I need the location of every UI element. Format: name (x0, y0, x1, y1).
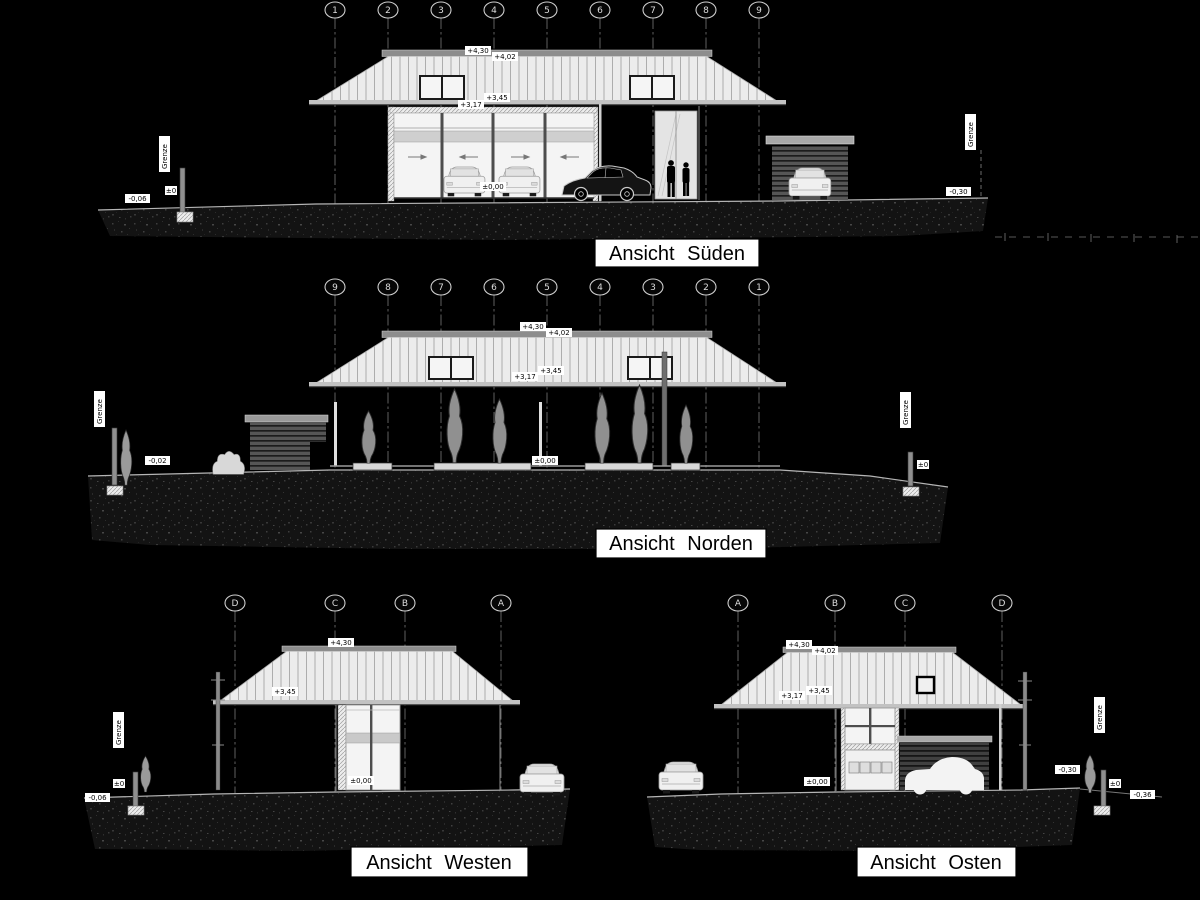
svg-text:C: C (332, 599, 338, 609)
svg-text:-0,06: -0,06 (128, 195, 147, 203)
view-sued: 1 2 3 4 5 6 7 8 9 (98, 2, 1200, 267)
view-ost: A B C D (647, 595, 1162, 877)
svg-text:+4,30: +4,30 (467, 47, 488, 55)
grid-bubble: 9 8 7 6 5 4 3 2 1 (325, 279, 769, 295)
svg-text:+4,30: +4,30 (330, 639, 351, 647)
svg-text:±0,00: ±0,00 (806, 778, 827, 786)
roof-window (917, 677, 934, 693)
svg-text:±0: ±0 (1110, 780, 1120, 788)
svg-text:C: C (902, 599, 908, 609)
elevation-sheet: 1 2 3 4 5 6 7 8 9 (0, 0, 1200, 900)
svg-text:+3,17: +3,17 (781, 692, 802, 700)
downpipe-east (1018, 672, 1032, 790)
svg-text:+4,02: +4,02 (814, 647, 835, 655)
svg-text:7: 7 (650, 6, 656, 16)
svg-text:±0,00: ±0,00 (534, 457, 555, 465)
svg-text:Ansicht Norden: Ansicht Norden (609, 533, 753, 555)
porch-column (334, 402, 337, 466)
svg-text:±0: ±0 (166, 187, 176, 195)
building-north (213, 331, 786, 474)
svg-text:±0: ±0 (114, 780, 124, 788)
grid-bubble: 1 2 3 4 5 6 7 8 9 (325, 2, 769, 18)
window-east (841, 708, 899, 790)
entrance-door (655, 111, 697, 199)
view-west: D C B A Grenze ±0 (84, 595, 570, 877)
svg-text:B: B (832, 599, 838, 609)
building-west (211, 646, 564, 796)
svg-text:-0,30: -0,30 (949, 188, 967, 196)
svg-text:A: A (498, 599, 505, 609)
svg-text:8: 8 (703, 6, 709, 16)
porch-column (999, 704, 1002, 790)
svg-text:9: 9 (332, 283, 338, 293)
roof-west (220, 651, 513, 701)
svg-text:8: 8 (385, 283, 391, 293)
title-east: Ansicht Osten (857, 847, 1016, 877)
building-south (309, 50, 854, 201)
svg-text:5: 5 (544, 283, 550, 293)
title-north: Ansicht Norden (596, 529, 766, 558)
ground-south (98, 198, 1200, 243)
grid-bubble: A B C D (728, 595, 1012, 611)
svg-text:±0,00: ±0,00 (350, 777, 371, 785)
car-front-in-showroom (499, 167, 540, 196)
downpipe-north (662, 352, 667, 466)
svg-text:9: 9 (756, 6, 762, 16)
svg-text:-0,30: -0,30 (1058, 766, 1076, 774)
cypress (141, 756, 151, 792)
downpipe-west (211, 672, 225, 790)
svg-text:+4,02: +4,02 (548, 329, 569, 337)
building-east (659, 647, 1032, 795)
svg-text:1: 1 (756, 283, 762, 293)
roof-north (316, 337, 777, 383)
cypress-trees (362, 385, 693, 463)
car-front-east (659, 762, 703, 794)
svg-text:Grenze: Grenze (967, 122, 975, 147)
garden-shed (245, 415, 328, 470)
svg-text:D: D (999, 599, 1006, 609)
svg-text:+3,17: +3,17 (460, 101, 481, 109)
car-front-carport (789, 168, 831, 200)
grid-bubble: D C B A (225, 595, 511, 611)
view-nord: 9 8 7 6 5 4 3 2 1 (88, 279, 948, 558)
car-front-in-showroom (444, 167, 485, 196)
carport-south (766, 136, 854, 200)
svg-text:-0,02: -0,02 (148, 457, 166, 465)
ground-north (88, 470, 948, 549)
svg-text:4: 4 (597, 283, 603, 293)
svg-text:B: B (402, 599, 408, 609)
ground-west (84, 789, 570, 851)
svg-text:+3,45: +3,45 (808, 687, 829, 695)
svg-text:5: 5 (544, 6, 550, 16)
svg-text:+3,45: +3,45 (486, 94, 507, 102)
svg-text:±0,00: ±0,00 (482, 183, 503, 191)
svg-text:+3,45: +3,45 (540, 367, 561, 375)
svg-text:3: 3 (438, 6, 444, 16)
svg-text:6: 6 (491, 283, 497, 293)
svg-text:-0,36: -0,36 (1133, 791, 1152, 799)
svg-text:±0: ±0 (918, 461, 928, 469)
svg-text:+4,30: +4,30 (788, 641, 809, 649)
svg-text:2: 2 (703, 283, 709, 293)
svg-text:Ansicht Osten: Ansicht Osten (870, 852, 1002, 874)
svg-text:+4,30: +4,30 (522, 323, 543, 331)
svg-text:-0,06: -0,06 (88, 794, 107, 802)
svg-text:6: 6 (597, 6, 603, 16)
title-west: Ansicht Westen (351, 847, 528, 877)
car-rear-west (520, 764, 564, 796)
cypress (1085, 755, 1096, 793)
title-south: Ansicht Süden (595, 239, 759, 267)
svg-text:Grenze: Grenze (1096, 705, 1104, 730)
svg-text:Grenze: Grenze (96, 399, 104, 424)
svg-text:+3,45: +3,45 (274, 688, 295, 696)
svg-text:Grenze: Grenze (902, 400, 910, 425)
svg-text:A: A (735, 599, 742, 609)
svg-text:3: 3 (650, 283, 656, 293)
svg-text:+3,17: +3,17 (514, 373, 535, 381)
svg-text:Ansicht Westen: Ansicht Westen (366, 852, 512, 874)
svg-text:Ansicht Süden: Ansicht Süden (609, 243, 745, 265)
svg-text:Grenze: Grenze (115, 720, 123, 745)
svg-text:+4,02: +4,02 (494, 53, 515, 61)
svg-text:1: 1 (332, 6, 338, 16)
svg-text:D: D (232, 599, 239, 609)
roof-east (721, 652, 1021, 705)
carport-east (897, 736, 992, 795)
bush (213, 451, 245, 474)
svg-text:7: 7 (438, 283, 444, 293)
svg-text:2: 2 (385, 6, 391, 16)
svg-text:4: 4 (491, 6, 497, 16)
svg-text:Grenze: Grenze (161, 144, 169, 169)
ground-east (647, 788, 1162, 851)
roof-south (316, 56, 777, 101)
